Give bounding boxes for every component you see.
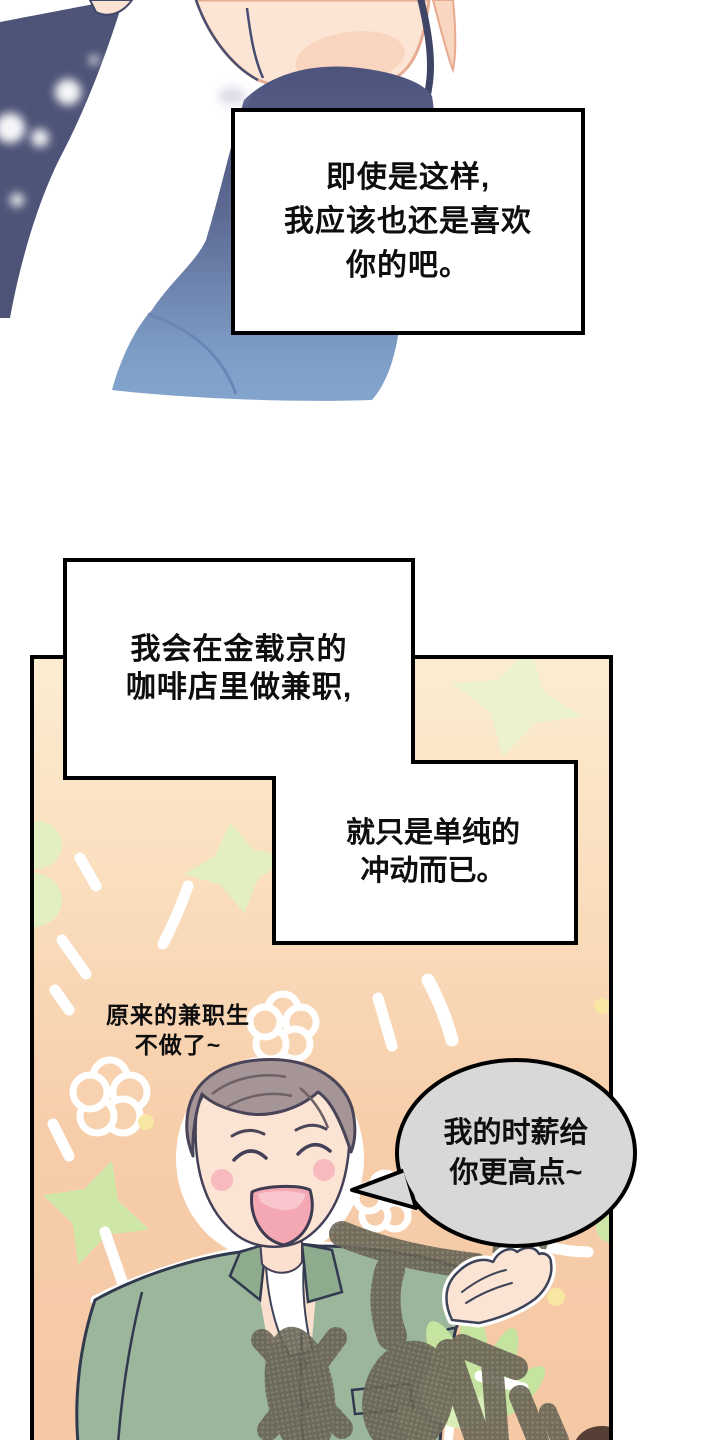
skin-fragment bbox=[90, 0, 132, 15]
caption-line: 不做了~ bbox=[135, 1030, 221, 1060]
narration-line: 就只是单纯的 bbox=[346, 814, 520, 852]
narration-text-top: 即使是这样, 我应该也还是喜欢 你的吧。 bbox=[233, 110, 583, 333]
narration-line: 我应该也还是喜欢 bbox=[284, 200, 532, 244]
speech-bubble-text: 我的时薪给 你更高点~ bbox=[397, 1062, 635, 1244]
navy-edge-stroke bbox=[421, 0, 431, 100]
navy-wedge-shape bbox=[0, 0, 122, 318]
narration-line: 你的吧。 bbox=[346, 244, 470, 288]
comic-page: 即使是这样, 我应该也还是喜欢 你的吧。 我会在金载京的 咖啡店里做兼职, 就只… bbox=[0, 0, 720, 1440]
narration-text-cafe: 我会在金载京的 咖啡店里做兼职, bbox=[65, 560, 413, 778]
narration-line: 冲动而已。 bbox=[360, 852, 505, 890]
arm-skin-sliver bbox=[433, 0, 455, 70]
narration-line: 我会在金载京的 bbox=[131, 631, 348, 669]
blush-right bbox=[313, 1159, 335, 1181]
narration-line: 即使是这样, bbox=[326, 156, 490, 200]
narration-text-impulse: 就只是单纯的 冲动而已。 bbox=[274, 761, 576, 943]
shadow-spot bbox=[218, 87, 246, 105]
blush-left bbox=[211, 1169, 233, 1191]
bubble-line: 我的时薪给 bbox=[443, 1113, 588, 1153]
caption-line: 原来的兼职生 bbox=[106, 1000, 250, 1030]
narration-line: 咖啡店里做兼职, bbox=[126, 669, 352, 707]
bubble-line: 你更高点~ bbox=[450, 1153, 583, 1193]
dark-corner-blob bbox=[574, 1426, 609, 1440]
caption-text: 原来的兼职生 不做了~ bbox=[88, 998, 268, 1062]
